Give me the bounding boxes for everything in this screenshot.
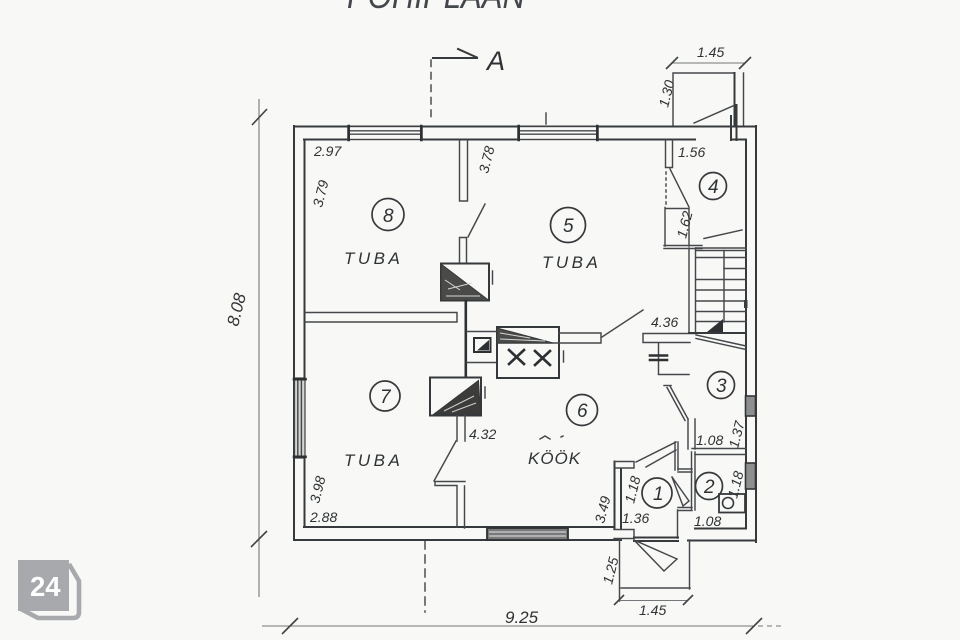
svg-text:1.37: 1.37	[725, 418, 747, 449]
svg-text:TUBA: TUBA	[542, 253, 601, 272]
svg-text:3.98: 3.98	[306, 474, 328, 505]
svg-text:2.97: 2.97	[313, 143, 342, 159]
svg-text:4: 4	[708, 177, 719, 198]
svg-text:1.36: 1.36	[622, 510, 649, 526]
svg-text:1.45: 1.45	[639, 602, 666, 618]
svg-text:8.08: 8.08	[223, 291, 250, 328]
svg-text:1: 1	[653, 484, 664, 505]
svg-text:7: 7	[380, 387, 392, 408]
svg-text:1.62: 1.62	[673, 209, 695, 240]
svg-text:TUBA: TUBA	[344, 451, 403, 470]
svg-text:1.30: 1.30	[655, 78, 677, 109]
svg-text:5: 5	[563, 216, 574, 237]
svg-text:3.78: 3.78	[475, 144, 497, 175]
svg-text:2.88: 2.88	[309, 509, 337, 525]
svg-text:PÕHIPLAAN: PÕHIPLAAN	[347, 0, 526, 16]
svg-text:6: 6	[577, 401, 588, 422]
svg-text:1.45: 1.45	[697, 44, 724, 60]
svg-text:1.08: 1.08	[696, 432, 723, 448]
svg-text:4.36: 4.36	[651, 314, 678, 330]
svg-text:1.18: 1.18	[621, 474, 643, 505]
svg-text:24: 24	[30, 571, 61, 602]
svg-text:3.79: 3.79	[309, 178, 331, 209]
svg-text:2: 2	[703, 477, 715, 498]
svg-text:A: A	[485, 46, 505, 76]
svg-text:KÖÖK: KÖÖK	[528, 449, 581, 468]
svg-text:TUBA: TUBA	[344, 249, 403, 268]
svg-text:1.56: 1.56	[678, 144, 705, 160]
svg-text:3: 3	[716, 376, 727, 397]
svg-text:3.49: 3.49	[591, 494, 613, 525]
svg-text:1.25: 1.25	[599, 555, 621, 586]
svg-text:9.25: 9.25	[505, 608, 539, 627]
svg-text:4.32: 4.32	[469, 426, 496, 442]
svg-text:1.08: 1.08	[694, 513, 721, 529]
svg-text:8: 8	[383, 206, 394, 227]
